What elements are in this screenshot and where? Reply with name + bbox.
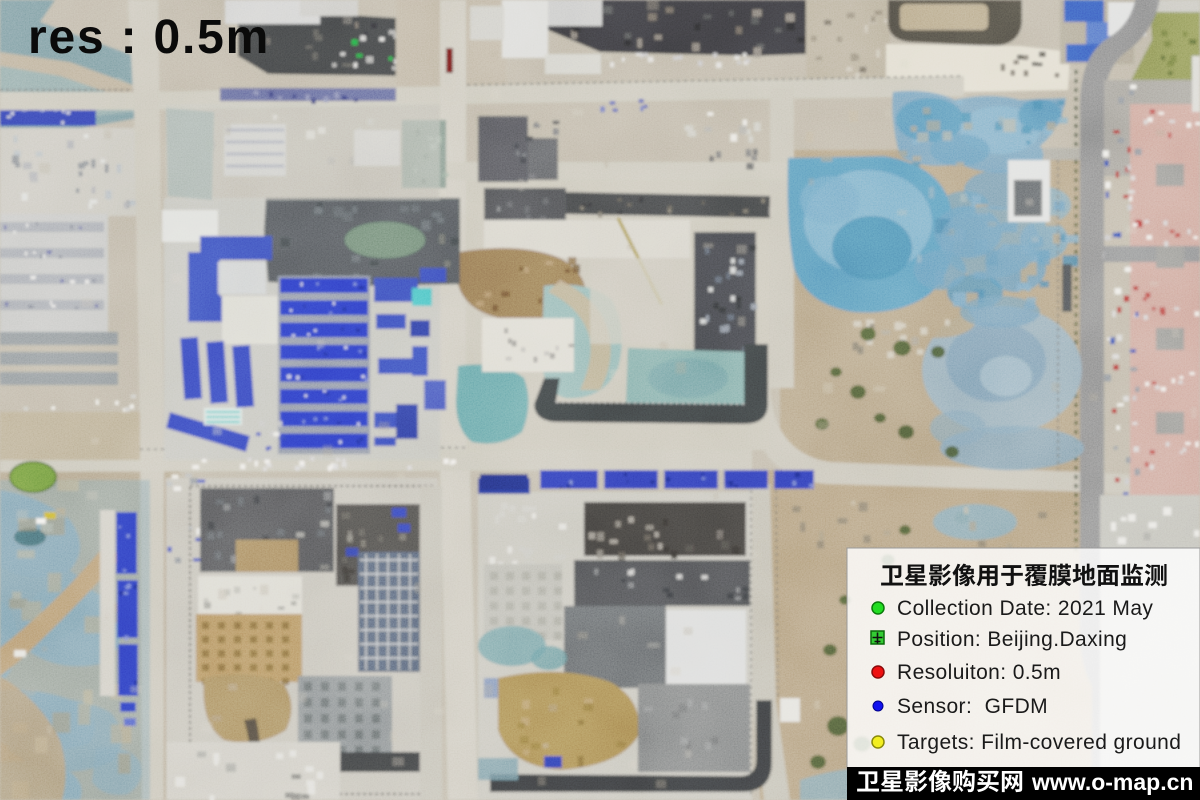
svg-text:Collection Date: 2021 May: Collection Date: 2021 May <box>897 597 1153 620</box>
svg-text:Resoluiton: 0.5m: Resoluiton: 0.5m <box>897 661 1061 684</box>
svg-text:res : 0.5m: res : 0.5m <box>28 11 270 64</box>
svg-text:Sensor: GFDM: Sensor: GFDM <box>897 695 1048 718</box>
svg-text:Position: Beijing.Daxing: Position: Beijing.Daxing <box>897 628 1127 651</box>
svg-text:Targets: Film-covered ground: Targets: Film-covered ground <box>897 731 1181 754</box>
svg-text:www.o-map.cn: www.o-map.cn <box>1031 769 1193 795</box>
